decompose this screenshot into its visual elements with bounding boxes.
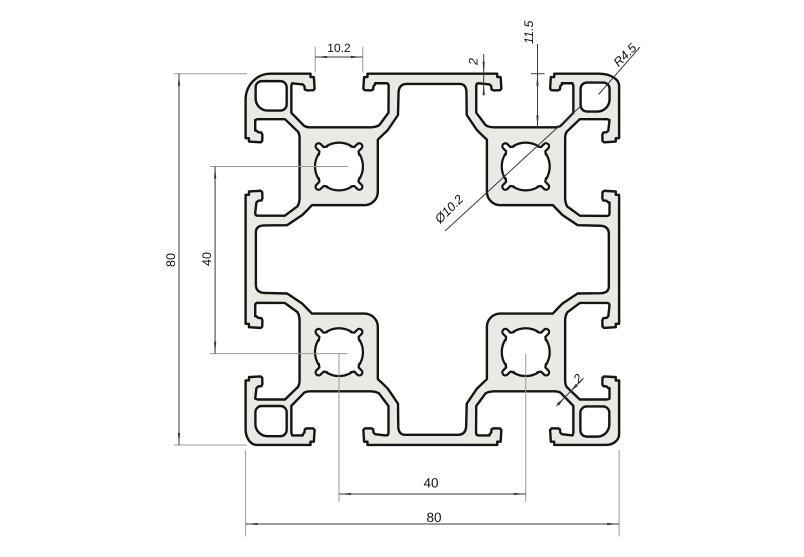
svg-text:80: 80: [426, 510, 441, 525]
svg-text:11.5: 11.5: [522, 21, 536, 44]
svg-text:40: 40: [200, 252, 214, 266]
svg-text:2: 2: [467, 58, 481, 66]
svg-text:80: 80: [164, 253, 178, 267]
svg-text:40: 40: [423, 476, 438, 491]
svg-text:10.2: 10.2: [327, 41, 351, 55]
